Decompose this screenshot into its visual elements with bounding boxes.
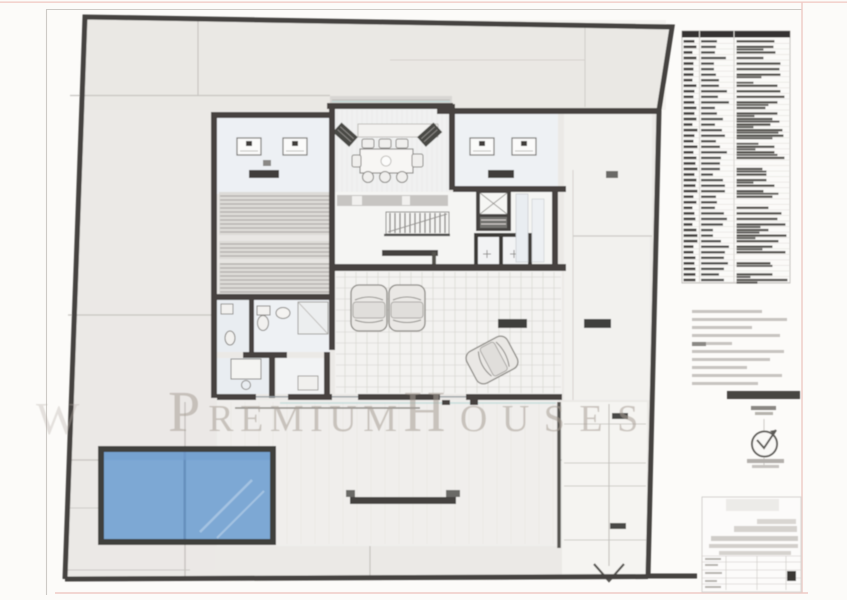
- svg-text:W: W: [36, 393, 80, 444]
